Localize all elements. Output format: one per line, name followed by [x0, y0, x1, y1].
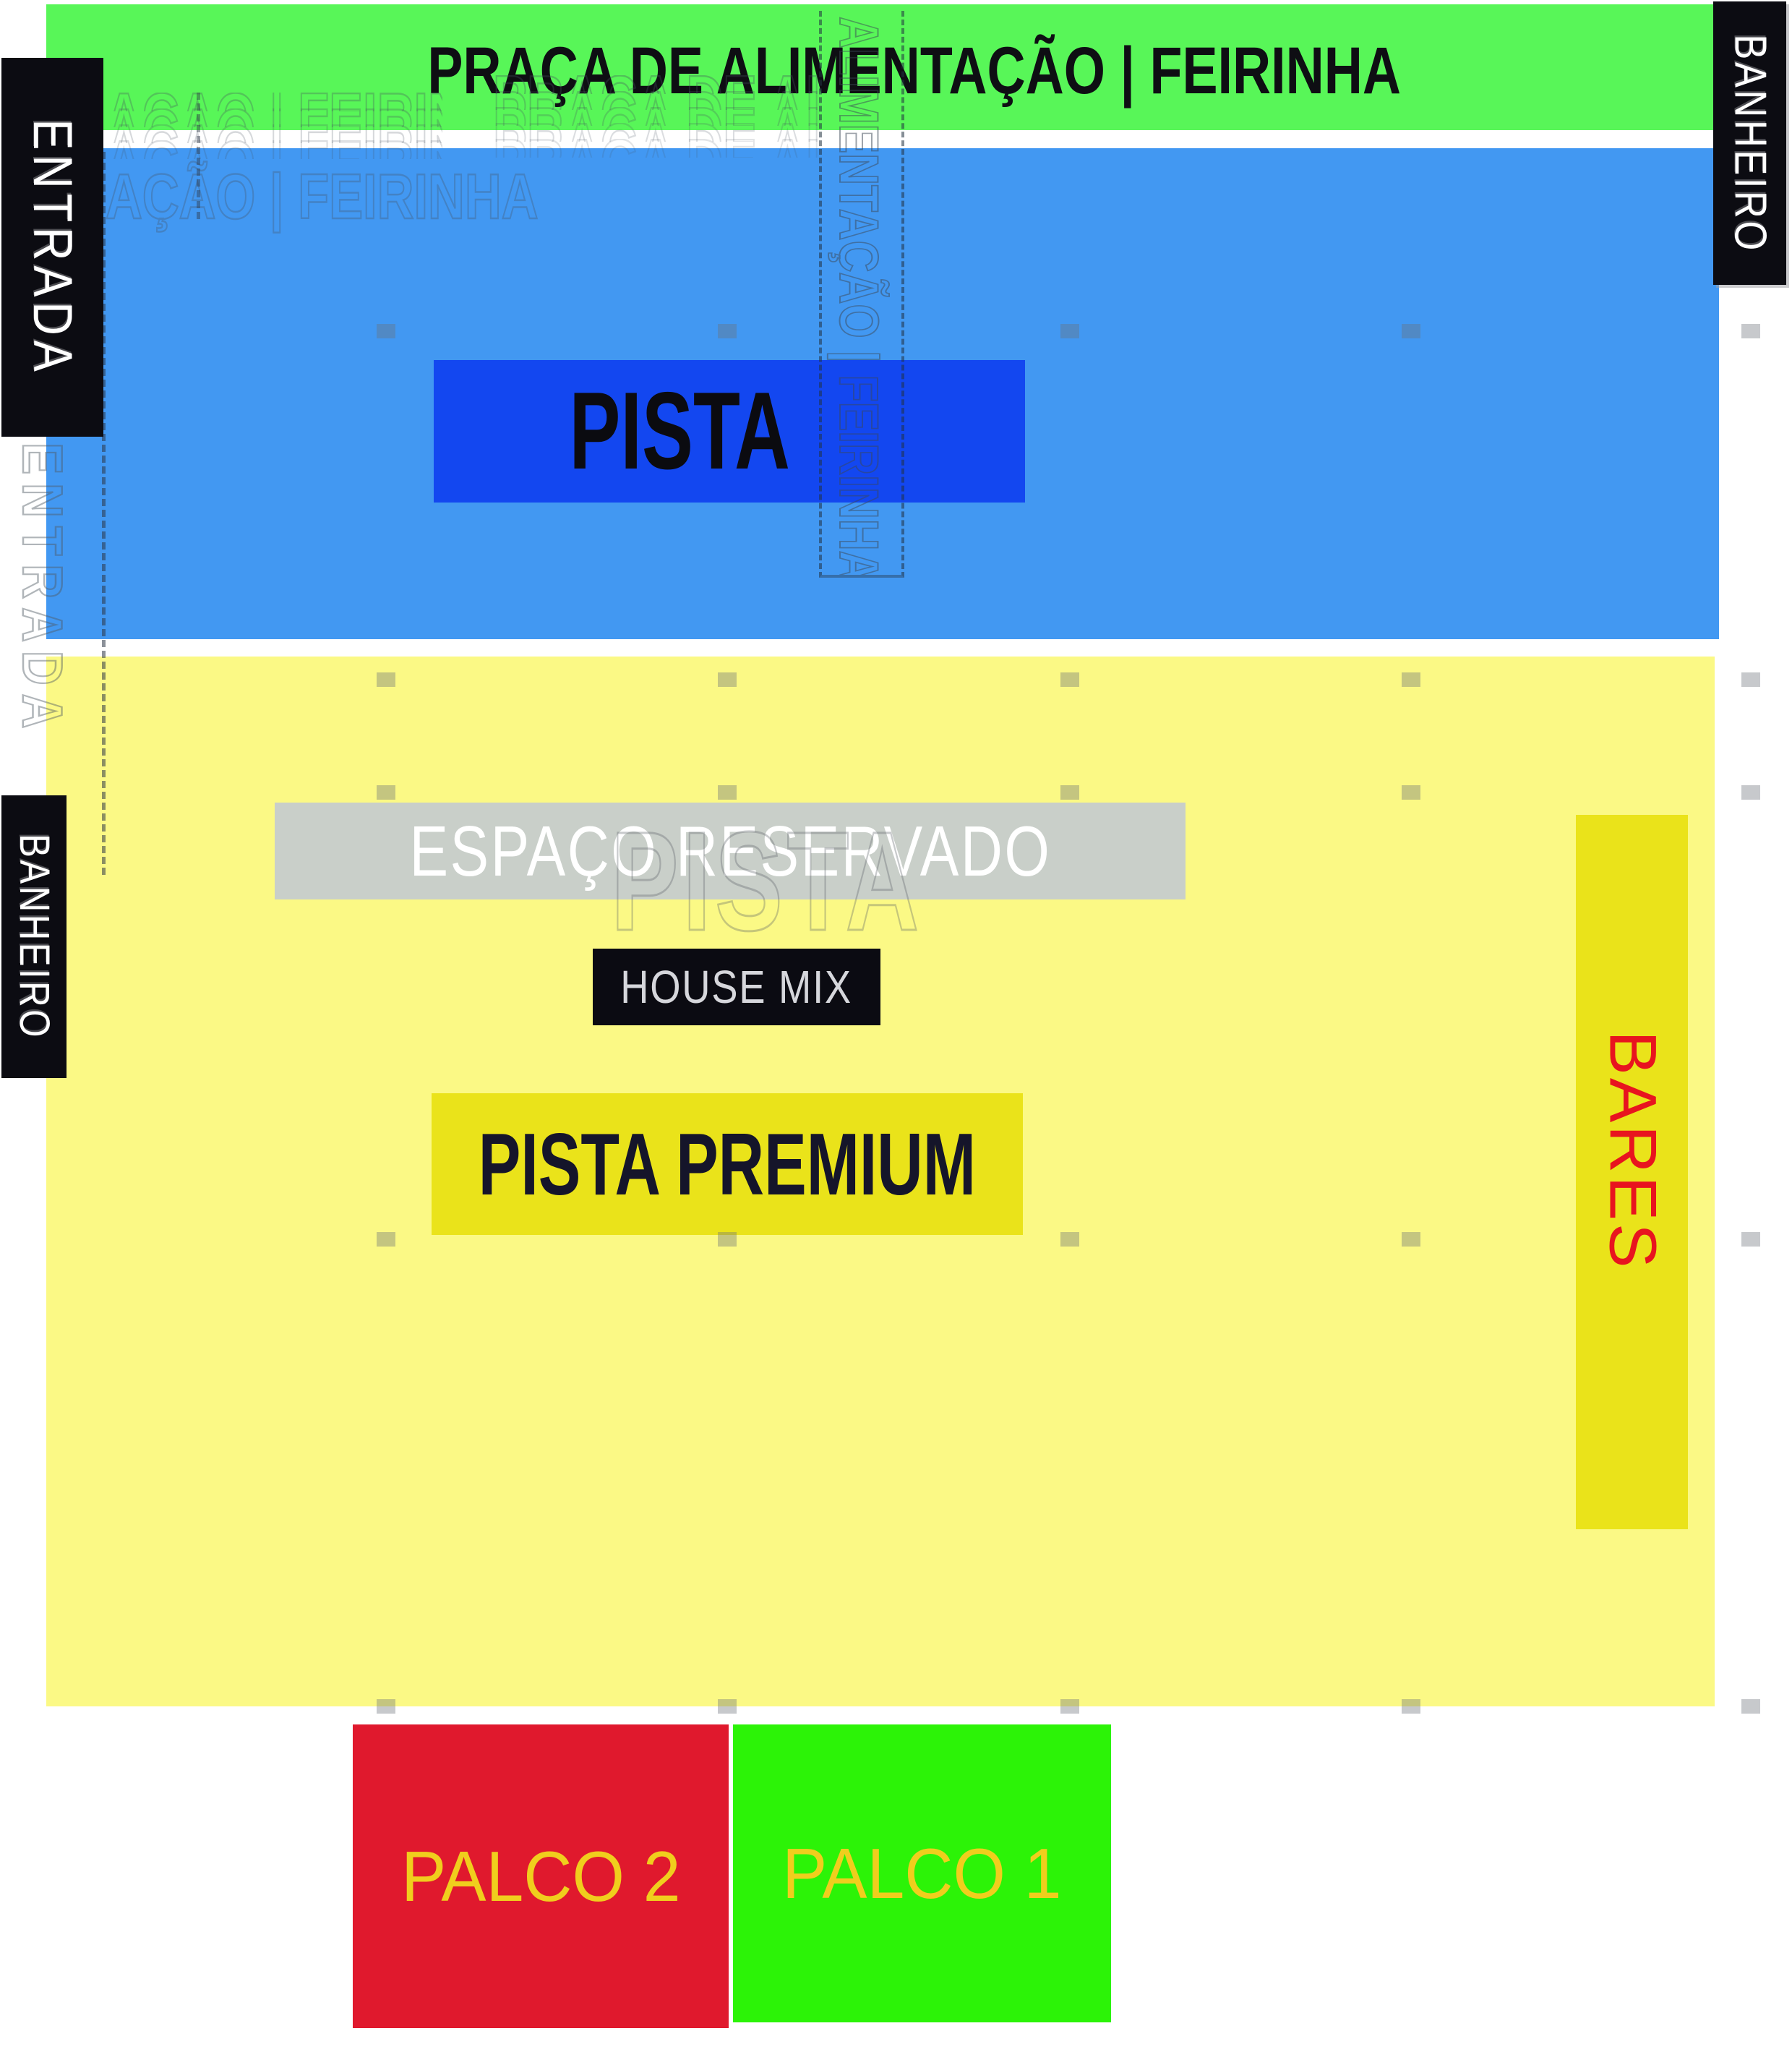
selection-handle — [718, 1699, 737, 1714]
entrance-label: ENTRADA — [21, 119, 84, 376]
selection-handle — [1060, 785, 1079, 800]
selection-handle — [718, 672, 737, 687]
selection-handle — [1741, 1699, 1760, 1714]
ghost-title-row: AÇÃO | FEIRINHA — [106, 165, 646, 228]
ghost-entrada-text: ENTRADA — [75, 443, 421, 508]
selection-handle — [377, 324, 395, 338]
selection-handle — [377, 1699, 395, 1714]
house-mix-booth: HOUSE MIX — [593, 949, 880, 1025]
ghost-vertical-strip: ALIMENTAÇÃO | FEIRINHA — [819, 11, 904, 578]
restroom-sign-left: BANHEIRO — [1, 795, 67, 1078]
selection-handle — [377, 1232, 395, 1247]
selection-handle — [718, 1232, 737, 1247]
restroom-sign-top-right: BANHEIRO — [1713, 1, 1786, 285]
stage-1-label: PALCO 1 — [782, 1833, 1061, 1915]
stage-1-box: PALCO 1 — [733, 1724, 1111, 2022]
selection-handle — [377, 672, 395, 687]
selection-handle — [1402, 785, 1420, 800]
house-mix-label: HOUSE MIX — [621, 960, 853, 1014]
dashed-guide-line — [197, 93, 200, 219]
pista-premium-label: PISTA PREMIUM — [479, 1113, 976, 1215]
selection-handle — [718, 785, 737, 800]
selection-handle — [1402, 672, 1420, 687]
selection-handle — [718, 324, 737, 338]
pista-zone: PISTA — [434, 360, 1025, 503]
selection-handle — [1402, 1699, 1420, 1714]
pista-premium-zone: PISTA PREMIUM — [432, 1093, 1023, 1235]
selection-handle — [1741, 1232, 1760, 1247]
ghost-vertical-strip-text: ALIMENTAÇÃO | FEIRINHA — [827, 17, 890, 578]
restroom-left-label: BANHEIRO — [10, 834, 59, 1040]
selection-handle — [1060, 672, 1079, 687]
selection-handle — [1741, 672, 1760, 687]
stage-2-label: PALCO 2 — [401, 1836, 680, 1918]
selection-handle — [1402, 1232, 1420, 1247]
entrance-sign: ENTRADA — [1, 58, 103, 437]
bars-label: BARES — [1594, 1030, 1670, 1270]
selection-handle — [1741, 324, 1760, 338]
stage-2-box: PALCO 2 — [353, 1724, 729, 2028]
selection-handle — [377, 785, 395, 800]
ghost-title-stripe: PRAÇA DE ALIMENTAÇÃO | FEIRINHA — [493, 139, 820, 158]
pista-label: PISTA — [569, 368, 789, 495]
selection-handle — [1060, 1232, 1079, 1247]
bars-strip: BARES — [1576, 815, 1688, 1529]
selection-handle — [1402, 324, 1420, 338]
selection-handle — [1060, 324, 1079, 338]
venue-map-canvas: { "map": { "title": "PRAÇA DE ALIMENTAÇÃ… — [0, 0, 1792, 2052]
selection-handle — [1060, 1699, 1079, 1714]
ghost-pista-text: PISTA — [611, 811, 900, 956]
selection-handle — [1741, 785, 1760, 800]
ghost-title-stripe: AÇÃO | FEIRINHA — [106, 140, 442, 159]
restroom-top-label: BANHEIRO — [1724, 34, 1775, 252]
